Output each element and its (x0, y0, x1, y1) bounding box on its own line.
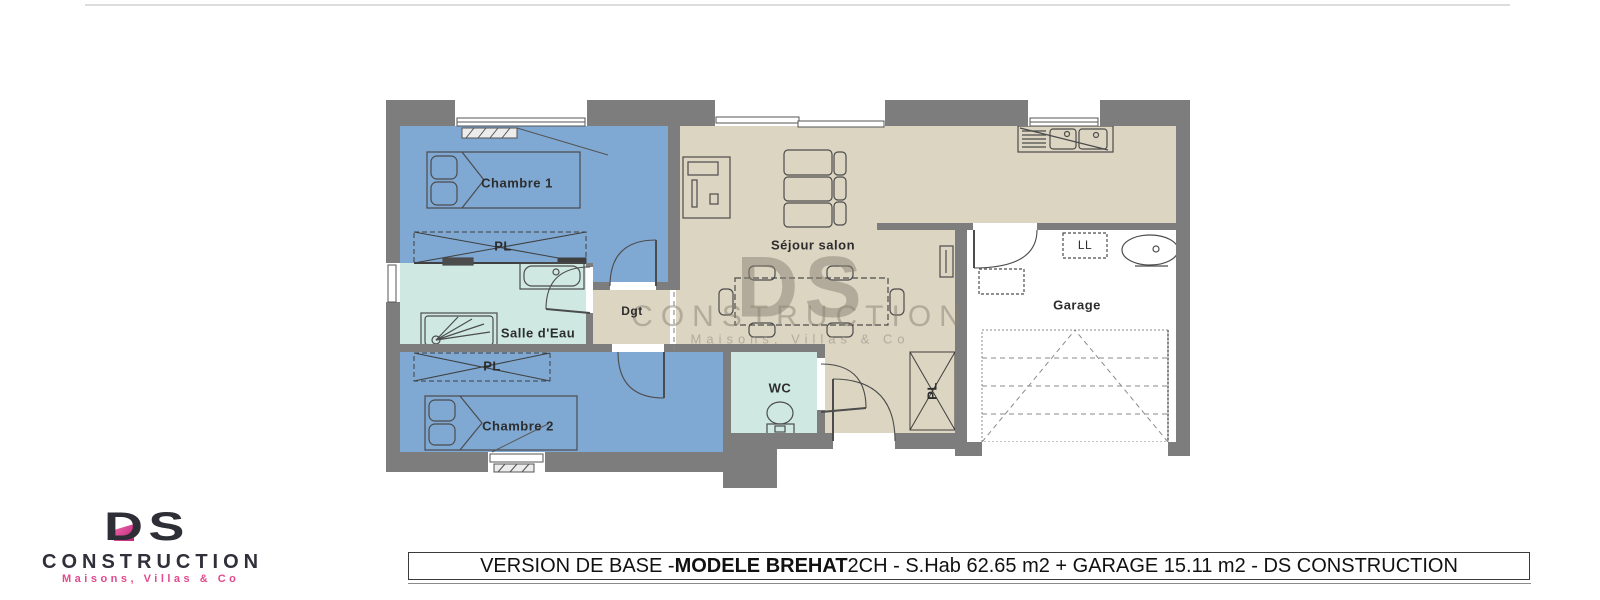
wall-chambre2-top (386, 344, 723, 352)
company-logo: DS CONSTRUCTION Maisons, Villas & Co (40, 505, 300, 595)
room-label-wc: WC (769, 381, 792, 396)
logo-name: CONSTRUCTION (42, 551, 263, 574)
room-label-sejour: Séjour salon (771, 238, 855, 253)
room-label-pl2: PL (483, 359, 501, 374)
room-sejour-kitchen-fill (676, 110, 1178, 225)
room-label-pl1: PL (494, 239, 512, 254)
logo-initials: DS (104, 505, 190, 550)
towel-rail-symbol (443, 258, 473, 265)
title-prefix: VERSION DE BASE - (480, 555, 675, 578)
title-suffix: 2CH - S.Hab 62.65 m2 + GARAGE 15.11 m2 -… (848, 555, 1458, 578)
room-label-dgt: Dgt (621, 304, 643, 318)
room-label-chambre2: Chambre 2 (482, 419, 554, 434)
wall-garage-left (955, 223, 967, 456)
logo-tagline: Maisons, Villas & Co (62, 573, 239, 585)
room-label-salle-eau: Salle d'Eau (501, 326, 575, 341)
wall-right (1176, 100, 1190, 456)
title-bar-underline (408, 583, 1531, 584)
wall-wc-left (723, 344, 731, 441)
room-label-pl3: PL (925, 382, 940, 400)
wall-wc-top (723, 344, 825, 352)
room-label-chambre1: Chambre 1 (481, 176, 553, 191)
room-garage-fill (957, 228, 1178, 446)
title-model: MODELE BREHAT (675, 555, 848, 578)
room-label-garage: Garage (1053, 298, 1101, 313)
window-salle-eau (388, 265, 396, 302)
wall-chambre1-sejour (668, 100, 680, 290)
wall-bottom-left (386, 452, 731, 472)
window-kitchen (1030, 118, 1098, 126)
label-washing-machine: LL (1078, 238, 1092, 252)
wall-porch-stub (723, 449, 777, 488)
title-bar: VERSION DE BASE - MODELE BREHAT 2CH - S.… (408, 552, 1530, 580)
floorplan-page: Chambre 1 PL Salle d'Eau PL Chambre 2 Dg… (0, 0, 1600, 600)
room-vestibule-fill (590, 263, 670, 285)
